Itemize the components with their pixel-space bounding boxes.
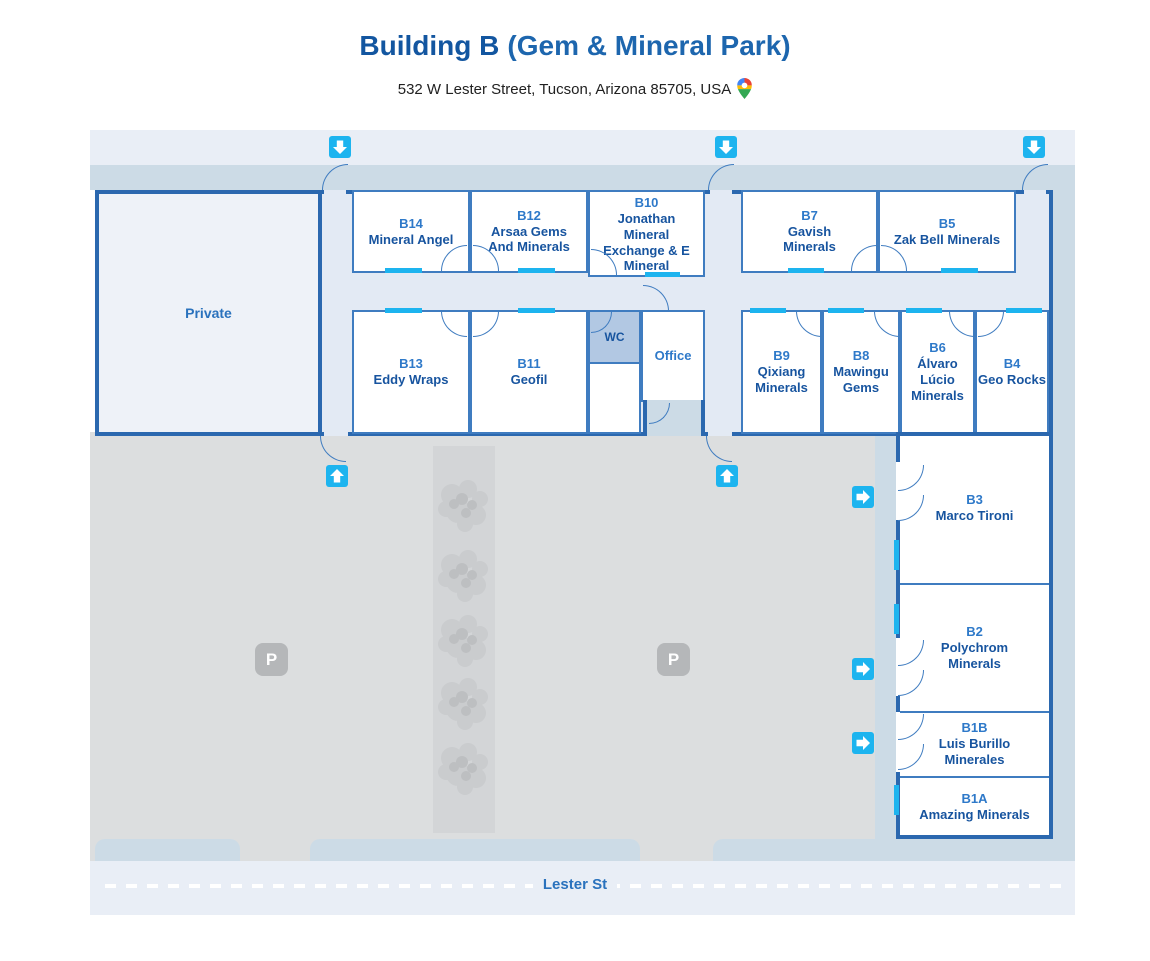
window-marker <box>941 268 978 273</box>
window-marker <box>906 308 942 313</box>
room-name: Mawingu Gems <box>824 364 898 396</box>
entrance-arrow-right-icon <box>852 732 874 754</box>
room-number: B3 <box>966 492 983 508</box>
tree-icon <box>432 478 496 534</box>
room-name: Luis Burillo Minerales <box>930 736 1020 768</box>
room-name: Eddy Wraps <box>374 372 449 388</box>
room-number: B13 <box>399 356 423 372</box>
building-subtitle: (Gem & Mineral Park) <box>507 30 790 61</box>
entrance-arrow-right-icon <box>852 658 874 680</box>
parking-letter: P <box>668 650 679 670</box>
page-title: Building B(Gem & Mineral Park) <box>0 30 1150 62</box>
room-name: Marco Tironi <box>936 508 1014 524</box>
building-title: Building B <box>359 30 499 61</box>
window-marker <box>645 272 680 277</box>
room-number: B11 <box>517 356 540 372</box>
room-name: Álvaro Lúcio Minerals <box>902 356 973 404</box>
window-marker <box>385 308 422 313</box>
entrance-arrow-right-icon <box>852 486 874 508</box>
room-number: B14 <box>399 216 423 232</box>
window-marker <box>828 308 864 313</box>
window-marker <box>750 308 786 313</box>
entrance-arrow-down-icon <box>329 136 351 158</box>
tree-icon <box>432 548 496 604</box>
room-b3: B3 Marco Tironi <box>898 434 1051 582</box>
private-area: Private <box>95 190 322 436</box>
window-marker <box>788 268 824 273</box>
window-marker <box>894 785 899 815</box>
room-number: B1B <box>961 720 987 736</box>
parking-icon: P <box>657 643 690 676</box>
sidewalk-curb <box>713 839 1075 861</box>
room-name: Mineral Angel <box>369 232 454 248</box>
private-label: Private <box>185 305 232 321</box>
room-number: B2 <box>966 624 983 640</box>
window-marker <box>385 268 422 273</box>
room-name: Zak Bell Minerals <box>894 232 1000 248</box>
room-name: Geofil <box>511 372 548 388</box>
room-number: B1A <box>961 791 987 807</box>
room-number: B5 <box>939 216 956 232</box>
entrance-arrow-down-icon <box>1023 136 1045 158</box>
window-marker <box>518 308 555 313</box>
room-name: Gavish Minerals <box>780 224 840 256</box>
office-label: Office <box>655 348 692 364</box>
sidewalk-curb <box>95 839 240 861</box>
floor-plan-page: Building B(Gem & Mineral Park) 532 W Les… <box>0 0 1150 961</box>
room-number: B8 <box>853 348 870 364</box>
google-maps-pin-icon[interactable] <box>737 78 752 103</box>
window-marker <box>894 540 899 570</box>
window-marker <box>894 604 899 634</box>
map-top-band <box>90 130 1075 165</box>
room-number: B7 <box>801 208 818 224</box>
window-marker <box>1006 308 1042 313</box>
room-unlabeled <box>588 362 641 434</box>
tree-icon <box>432 613 496 669</box>
wc-label: WC <box>605 330 625 345</box>
parking-letter: P <box>266 650 277 670</box>
entrance-opening <box>1024 190 1046 194</box>
room-name: Arsaa Gems And Minerals <box>485 224 573 256</box>
parking-icon: P <box>255 643 288 676</box>
room-office: Office <box>641 310 705 402</box>
room-name: Qixiang Minerals <box>743 364 820 396</box>
room-number: B10 <box>635 195 659 211</box>
sidewalk-curb <box>310 839 640 861</box>
room-number: B9 <box>773 348 790 364</box>
room-b1a: B1A Amazing Minerals <box>898 778 1051 835</box>
room-number: B12 <box>517 208 541 224</box>
street-name: Lester St <box>0 876 1150 894</box>
address-text: 532 W Lester Street, Tucson, Arizona 857… <box>398 81 732 98</box>
room-divider-wall <box>900 583 1049 585</box>
entrance-arrow-up-icon <box>716 465 738 487</box>
tree-icon <box>432 741 496 797</box>
room-number: B6 <box>929 340 946 356</box>
entrance-arrow-up-icon <box>326 465 348 487</box>
walkway-top <box>90 165 1075 190</box>
room-number: B4 <box>1004 356 1021 372</box>
tree-icon <box>432 676 496 732</box>
room-name: Polychrom Minerals <box>936 640 1014 672</box>
room-name: Geo Rocks <box>978 372 1046 388</box>
street-label: Lester St <box>533 876 617 893</box>
entrance-arrow-down-icon <box>715 136 737 158</box>
address-line: 532 W Lester Street, Tucson, Arizona 857… <box>0 78 1150 103</box>
entrance-opening <box>710 190 732 194</box>
room-name: Amazing Minerals <box>919 807 1030 823</box>
window-marker <box>518 268 555 273</box>
entrance-opening <box>324 190 346 194</box>
